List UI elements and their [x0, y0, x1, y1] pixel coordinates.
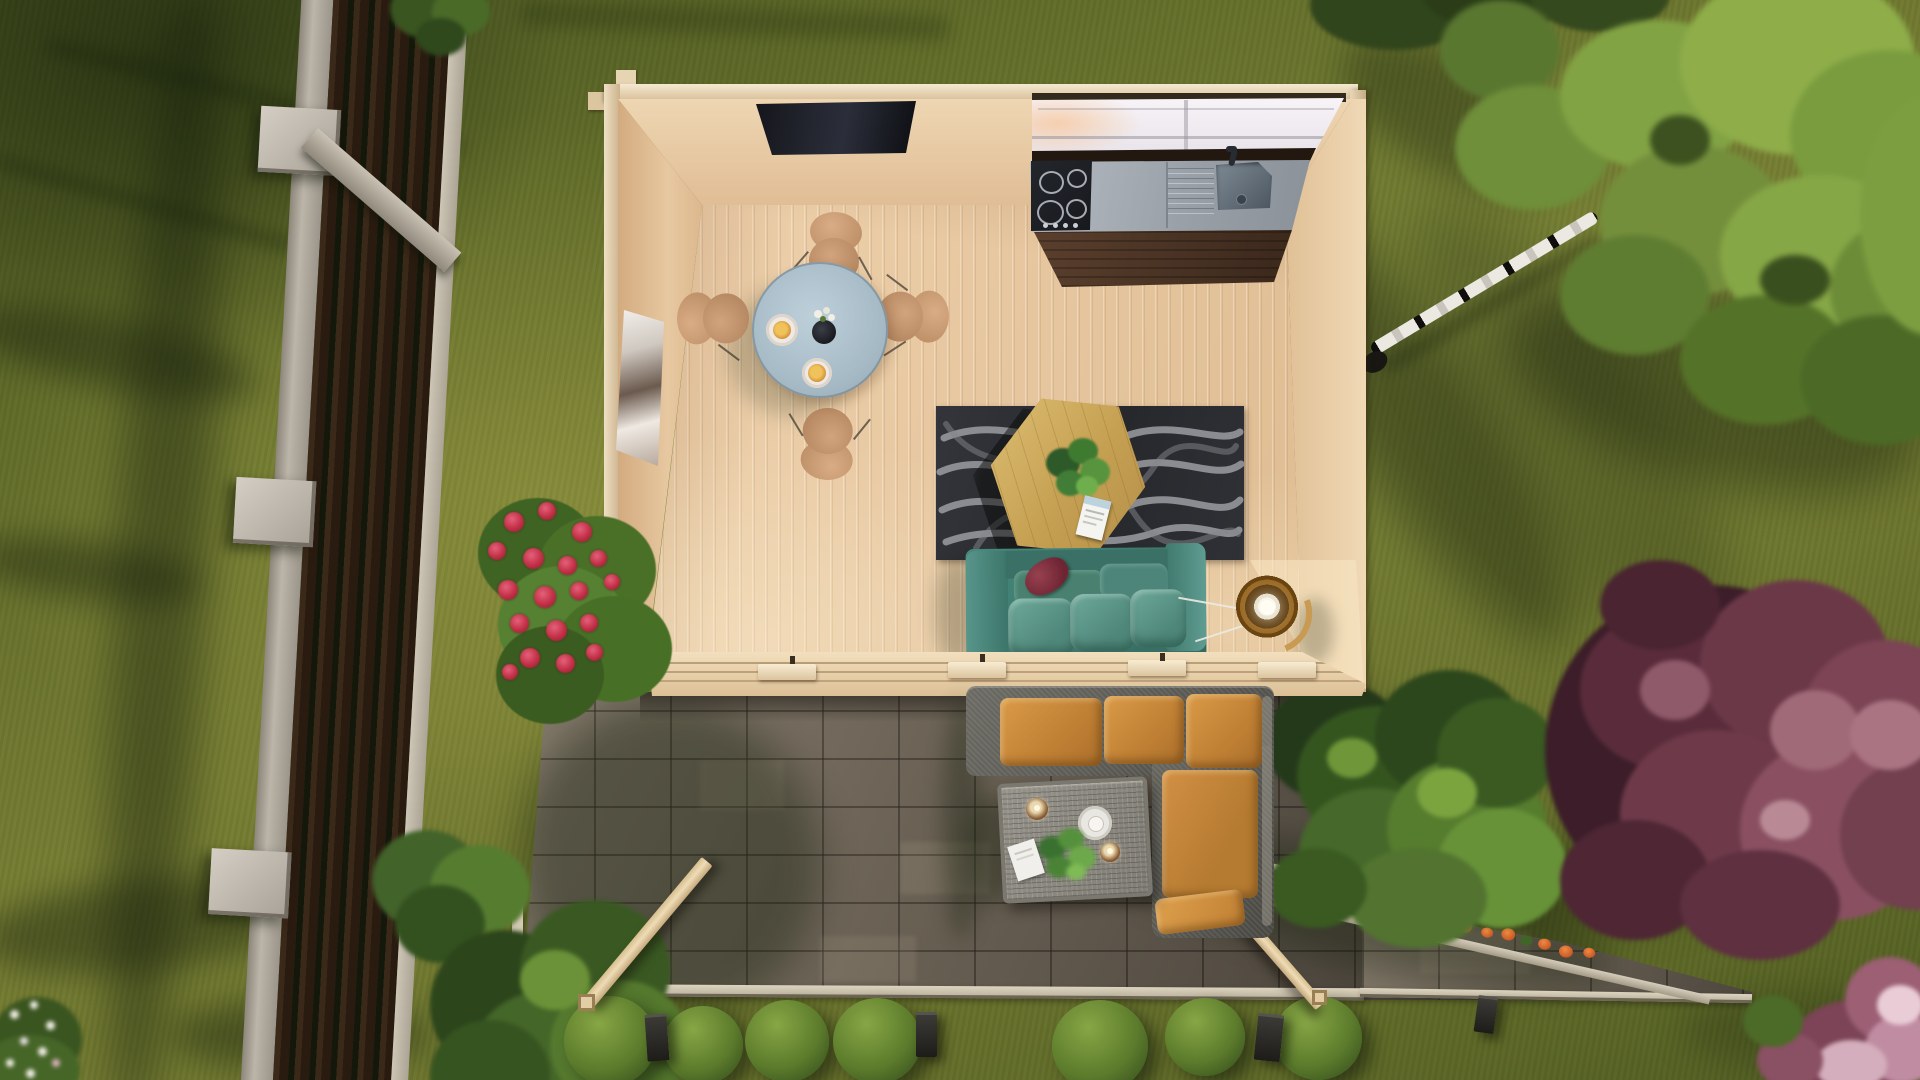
lamp-bulb: [1260, 600, 1275, 615]
door-track: [648, 680, 1366, 682]
outdoor-cushion: [1186, 694, 1262, 768]
ball-bush: [663, 1006, 743, 1080]
timber-beam-end: [1312, 990, 1327, 1005]
potted-plant: [1036, 436, 1116, 506]
bollard-light: [1254, 1013, 1285, 1062]
door-pin: [790, 656, 795, 664]
outdoor-cushion: [1104, 696, 1184, 764]
kitchen-cabinet: [1034, 230, 1292, 287]
door-pin: [980, 654, 985, 662]
candle: [1100, 842, 1120, 862]
door-hardware: [948, 662, 1006, 678]
barrel-floor-lamp: [1234, 574, 1302, 644]
rattan-sunlit-edge: [1262, 696, 1272, 926]
paver-highlight: [820, 936, 916, 982]
fence-post: [208, 848, 292, 918]
shelf-lip: [1032, 136, 1332, 139]
seat-cushion: [1008, 598, 1075, 657]
ball-bush: [833, 998, 921, 1080]
sink-faucet-head: [1226, 146, 1237, 152]
bollard-light: [916, 1012, 937, 1057]
door-hardware: [1128, 660, 1186, 676]
seat-cushion: [1070, 594, 1135, 653]
teal-sofa: [965, 543, 1206, 663]
white-flower-patch: [0, 985, 100, 1080]
vase-greens: [820, 316, 826, 322]
sofa-arm-left: [966, 551, 1009, 661]
dining-chair: [676, 290, 756, 349]
ball-bush: [1274, 996, 1362, 1080]
birch-canopy: [1410, 0, 1920, 460]
pink-flower-shrub: [1735, 945, 1920, 1080]
ball-bush: [745, 1000, 829, 1080]
induction-cooktop: [1031, 160, 1092, 231]
timber-beam-end: [578, 994, 595, 1011]
door-hardware: [1258, 662, 1316, 678]
fence-overhang-foliage: [380, 0, 500, 60]
outdoor-cushion-chaise: [1162, 770, 1258, 898]
vase-flower: [828, 314, 835, 321]
kitchen-open-shelf: [1032, 98, 1344, 154]
fence-post: [233, 477, 317, 547]
purple-tree: [1490, 530, 1920, 950]
red-flower-bush: [468, 488, 638, 698]
sink-drain: [1236, 194, 1247, 205]
bollard-light: [644, 1013, 669, 1061]
dinner-plate: [766, 314, 798, 346]
candle: [1026, 798, 1048, 820]
round-dining-table: [752, 262, 888, 398]
garden-aerial-render: [0, 0, 1920, 1080]
table-plant: [1030, 826, 1100, 888]
shelf-lip: [1038, 108, 1334, 110]
dinner-plate: [802, 358, 832, 388]
vase-flower: [823, 307, 830, 314]
sink-basin: [1214, 162, 1272, 212]
wall-tv: [756, 101, 916, 155]
door-pin: [1160, 653, 1165, 661]
flower-vase: [812, 320, 836, 344]
outdoor-cushion: [1000, 698, 1102, 766]
door-hardware: [758, 664, 816, 680]
ball-bush: [1165, 998, 1245, 1076]
dining-chair: [797, 400, 858, 482]
door-track: [648, 671, 1364, 673]
sink-drainboard: [1168, 168, 1214, 214]
